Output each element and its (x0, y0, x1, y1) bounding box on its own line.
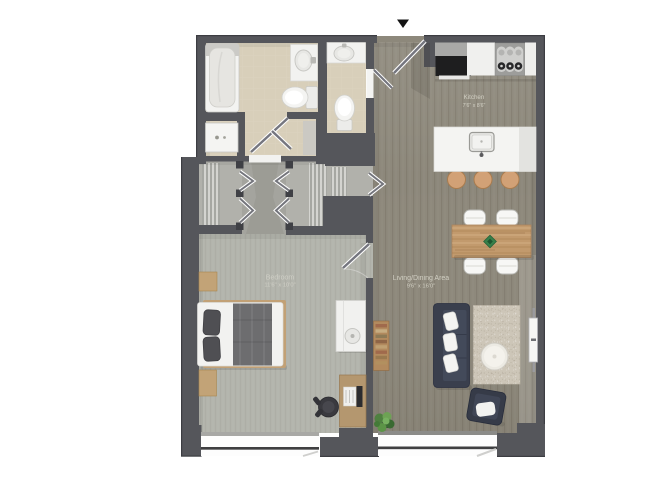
svg-text:Living/Dining Area: Living/Dining Area (393, 275, 450, 282)
svg-text:11'6" x 10'0": 11'6" x 10'0" (264, 283, 295, 289)
svg-text:7'6" x 8'6": 7'6" x 8'6" (463, 103, 486, 109)
svg-text:Bedroom: Bedroom (266, 275, 295, 282)
svg-text:9'6" x 16'0": 9'6" x 16'0" (407, 284, 436, 290)
svg-text:Kitchen: Kitchen (464, 94, 485, 101)
